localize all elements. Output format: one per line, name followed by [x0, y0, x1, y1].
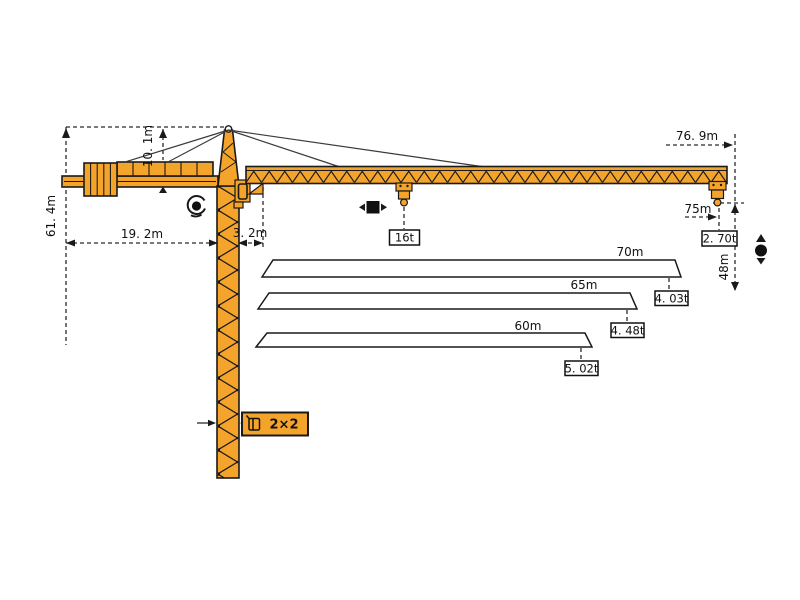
- label-rear-offset: 3. 2m: [233, 226, 268, 240]
- mast-section-label: 2×2: [270, 418, 299, 433]
- tower-head: [218, 130, 239, 186]
- diagram-canvas: 2×2 61. 4m 10. 1m 19. 2m 3. 2m 76. 9m 75…: [0, 0, 800, 600]
- arrow-up-head-height: [159, 129, 167, 138]
- arrow-down-hook-height: [731, 282, 739, 291]
- load-chart: [256, 260, 681, 360]
- motion-symbols: [188, 196, 767, 264]
- counterweight-block: [84, 163, 117, 196]
- jib-65m-shape: [258, 293, 637, 309]
- label-total-height: 61. 4m: [44, 195, 58, 237]
- label-jib-60m: 60m: [515, 319, 542, 333]
- trolley-travel-icon: [359, 201, 387, 214]
- label-head-height: 10. 1m: [141, 125, 155, 167]
- jib-60m-shape: [256, 333, 592, 347]
- arrow-right-tip-radius: [724, 142, 733, 149]
- arrow-left-counterjib: [66, 240, 75, 247]
- trolley-mid: [396, 183, 412, 206]
- hook-tip: [714, 199, 721, 206]
- label-tip-capacity: 2. 70t: [703, 232, 737, 246]
- hoist-up-down-icon: [755, 234, 767, 265]
- cab-step: [234, 202, 243, 208]
- crane-load-diagram: 2×2 61. 4m 10. 1m 19. 2m 3. 2m 76. 9m 75…: [0, 0, 800, 600]
- label-max-radius: 75m: [685, 202, 712, 216]
- arrow-up-hook-height: [731, 204, 739, 213]
- mast-section-callout: 2×2: [197, 413, 308, 436]
- jib-lattice: [246, 171, 727, 183]
- arrow-right-mast-width: [208, 420, 216, 426]
- arrow-right-rear-offset: [254, 240, 263, 247]
- label-capacity-70m: 4. 03t: [655, 292, 689, 306]
- jib-70m-shape: [262, 260, 681, 277]
- label-jib-65m: 65m: [571, 278, 598, 292]
- counter-jib: [62, 162, 218, 196]
- rotation-icon: [188, 196, 205, 216]
- label-jib-70m: 70m: [617, 245, 644, 259]
- cab-window: [239, 184, 248, 199]
- label-capacity-65m: 4. 48t: [611, 324, 645, 338]
- label-max-capacity: 16t: [395, 231, 415, 245]
- arrow-up-total-height: [62, 128, 70, 138]
- label-counterjib-radius: 19. 2m: [121, 227, 163, 241]
- trolley-tip: [709, 182, 726, 206]
- label-capacity-60m: 5. 02t: [565, 362, 599, 376]
- hook-mid: [401, 199, 408, 206]
- jib-root: [249, 184, 263, 195]
- label-tip-radius: 76. 9m: [676, 129, 718, 143]
- jib: [246, 167, 727, 206]
- label-hook-height: 48m: [717, 254, 731, 281]
